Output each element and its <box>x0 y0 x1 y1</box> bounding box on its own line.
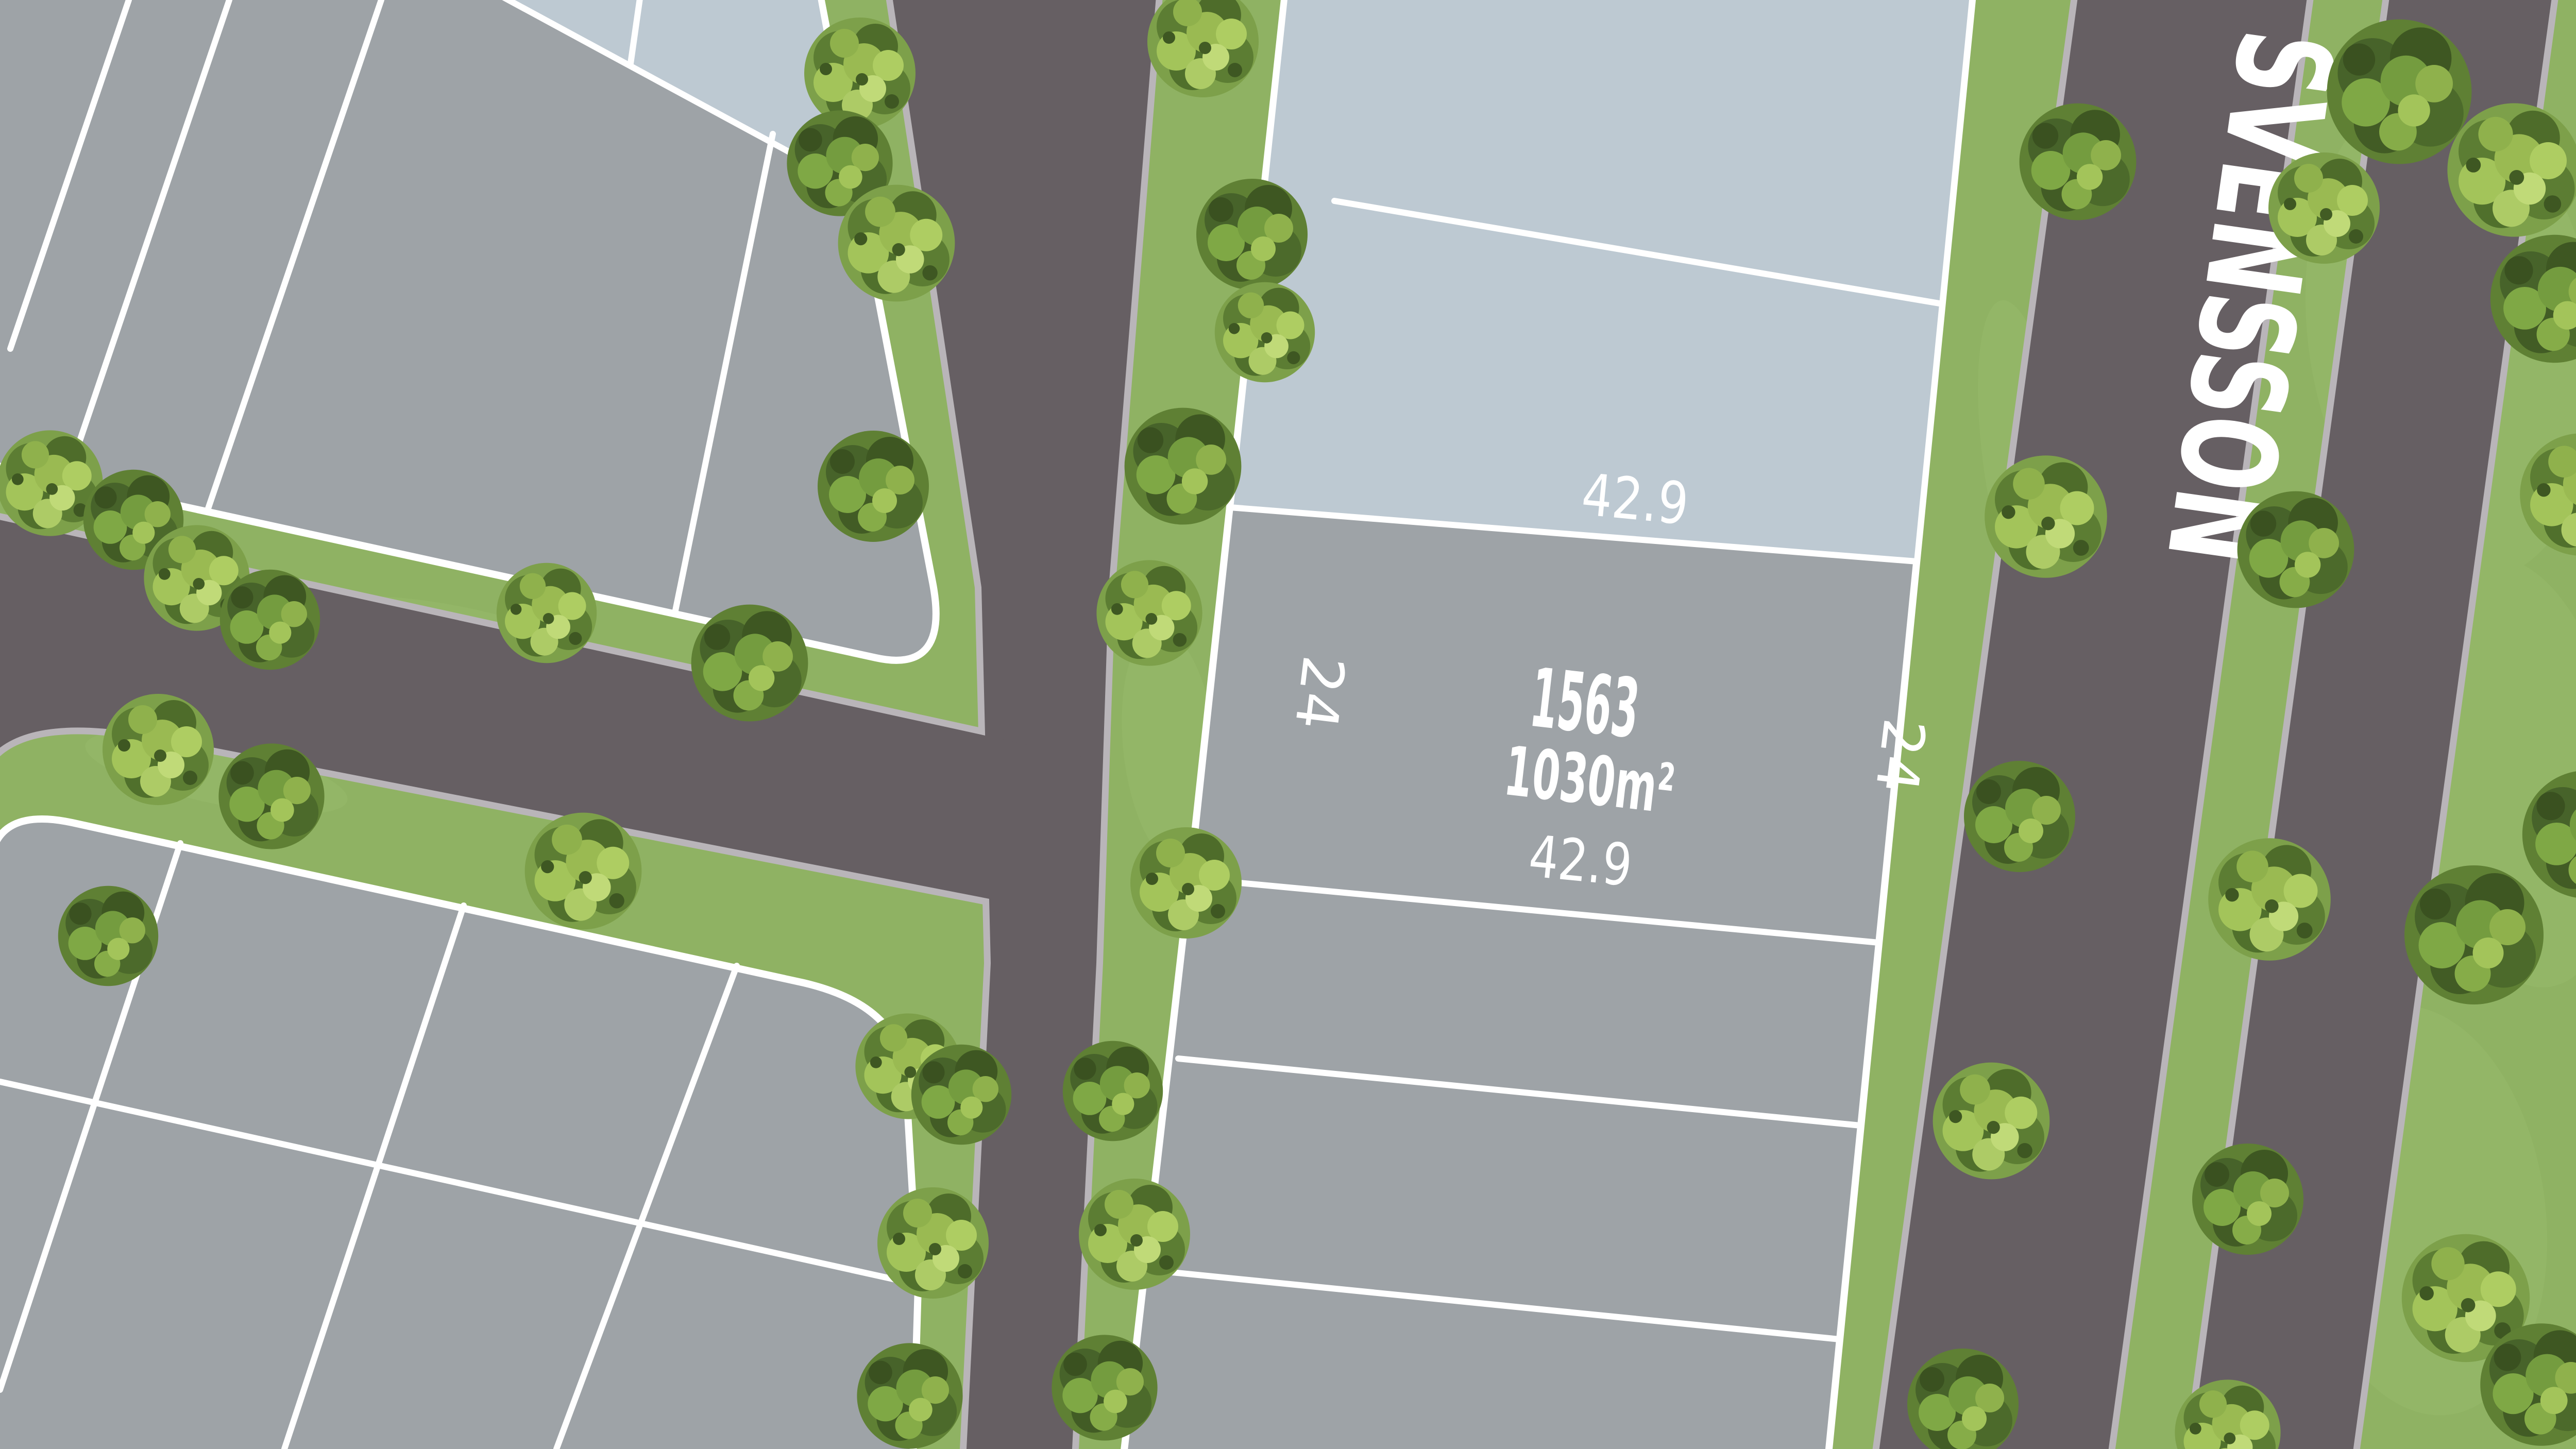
estate-site-plan: 42.9 42.9 24 24 1563 1030m² SVENSSON <box>0 0 2576 1449</box>
tree-icon <box>497 563 597 663</box>
tree-icon <box>857 1343 962 1448</box>
tree-icon <box>1096 560 1202 666</box>
tree-icon <box>2208 838 2331 961</box>
tree-icon <box>2447 103 2576 236</box>
tree-icon <box>218 743 324 849</box>
dim-bottom-label: 42.9 <box>1526 823 1635 900</box>
tree-icon <box>818 431 929 542</box>
tree-icon <box>877 1187 989 1299</box>
tree-icon <box>691 605 808 722</box>
tree-icon <box>1196 179 1308 290</box>
tree-icon <box>2238 491 2354 608</box>
dim-right-label: 24 <box>1862 715 1938 796</box>
site-plan-map: 42.9 42.9 24 24 1563 1030m² SVENSSON <box>0 0 2576 1449</box>
tree-icon <box>1063 1041 1163 1141</box>
tree-icon <box>2192 1144 2303 1255</box>
tree-icon <box>1933 1063 2050 1180</box>
tree-icon <box>1125 408 1242 525</box>
tree-icon <box>804 18 916 129</box>
tree-icon <box>2327 20 2472 164</box>
tree-icon <box>838 185 955 302</box>
tree-icon <box>1985 455 2107 578</box>
tree-icon <box>103 694 214 805</box>
tree-icon <box>1964 761 2075 872</box>
tree-icon <box>2268 152 2380 264</box>
dim-top-label: 42.9 <box>1579 462 1691 538</box>
tree-icon <box>2020 104 2137 220</box>
tree-icon <box>58 886 158 986</box>
tree-icon <box>1052 1335 1157 1440</box>
tree-icon <box>1079 1179 1190 1290</box>
tree-icon <box>2404 865 2544 1004</box>
tree-icon <box>911 1045 1011 1145</box>
tree-icon <box>220 570 320 670</box>
dim-left-label: 24 <box>1282 652 1357 733</box>
tree-icon <box>1215 282 1315 382</box>
tree-icon <box>1130 827 1242 939</box>
tree-icon <box>525 813 642 930</box>
